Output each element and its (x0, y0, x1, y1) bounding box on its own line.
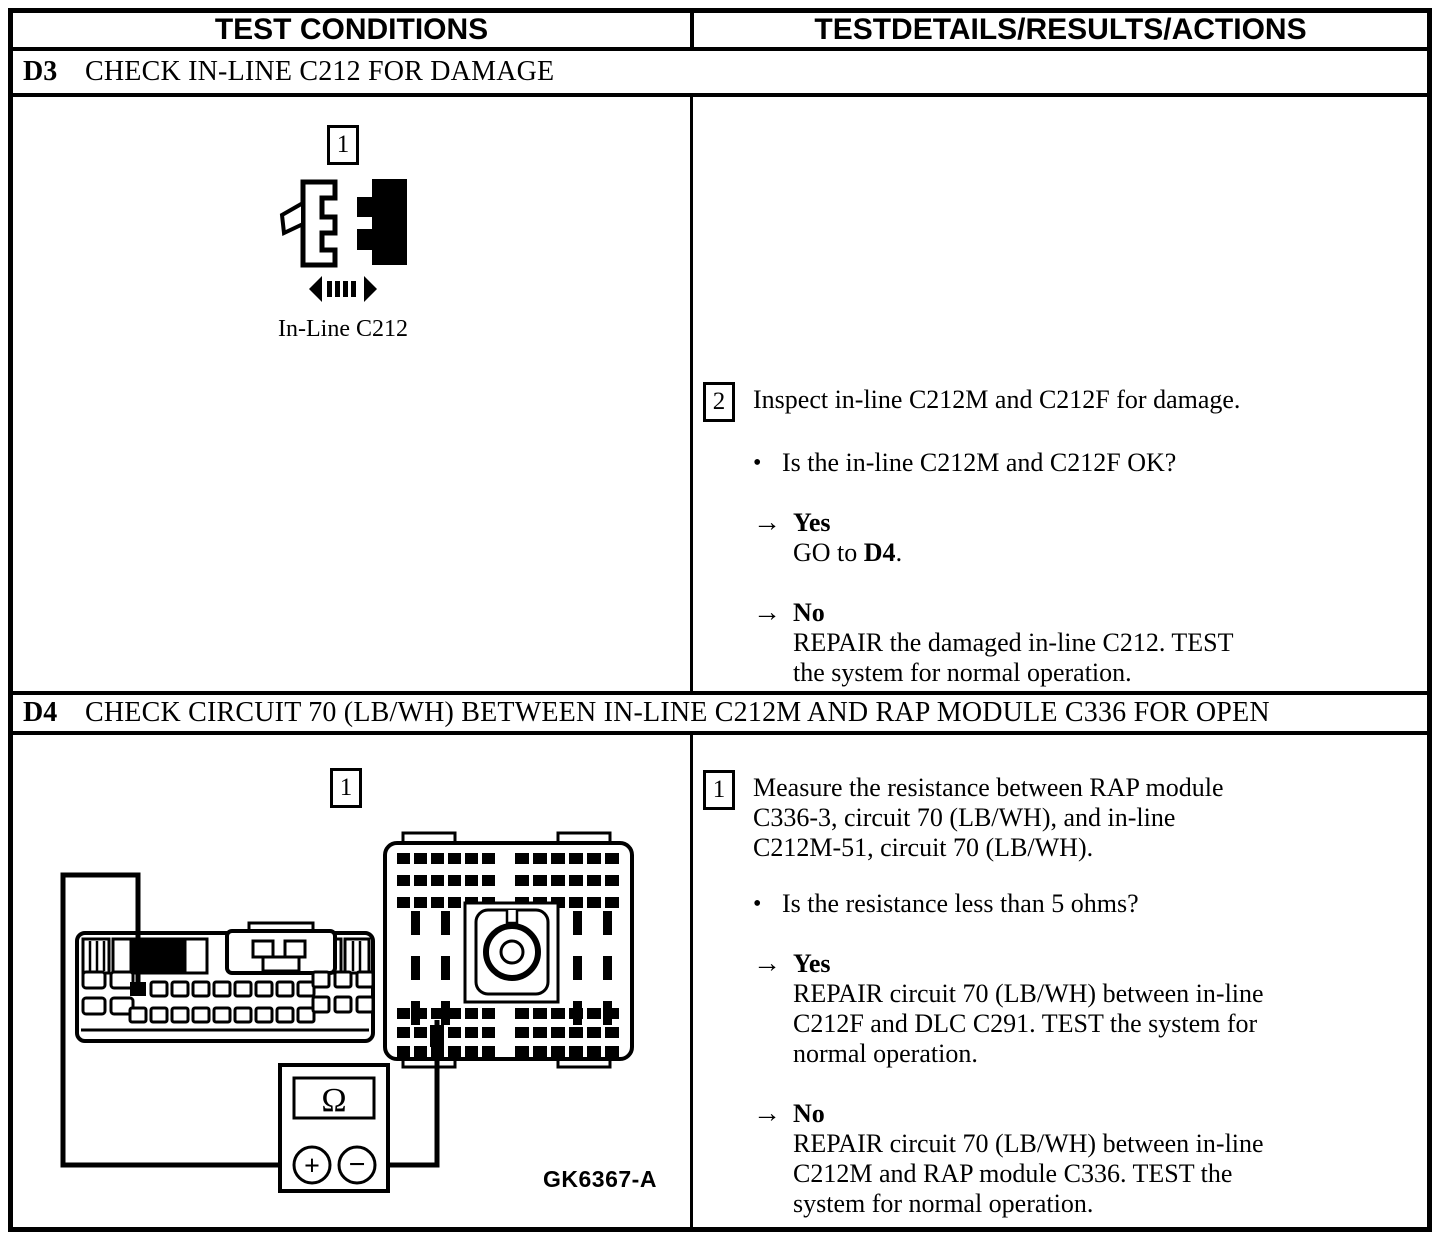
step-number-box: 2 (703, 382, 735, 422)
inline-connector-halves-diagram (278, 179, 408, 268)
result-arrow-icon: → (753, 949, 793, 979)
step-number: 1 (713, 775, 726, 805)
bullet-icon: • (753, 889, 782, 919)
arrow-dash (335, 281, 340, 297)
bullet-icon: • (753, 448, 782, 478)
question-text: Is the resistance less than 5 ohms? (782, 889, 1139, 919)
connector-male-half (303, 182, 335, 265)
step-number-box: 1 (703, 770, 735, 810)
header-test-details: TESTDETAILS/RESULTS/ACTIONS (694, 13, 1427, 47)
multimeter-diagram: Ω + − (280, 1065, 388, 1191)
pinpoint-test-table: TEST CONDITIONS TESTDETAILS/RESULTS/ACTI… (8, 8, 1432, 1232)
connector-female-half (372, 179, 407, 265)
result-arrow-icon: → (753, 598, 793, 628)
section-d4-title: CHECK CIRCUIT 70 (LB/WH) BETWEEN IN-LINE… (85, 697, 1270, 729)
action-text: . (896, 538, 903, 567)
section-d3-id: D3 (13, 56, 85, 88)
result-action: REPAIR circuit 70 (LB/WH) between in-lin… (793, 1129, 1264, 1219)
service-manual-page: TEST CONDITIONS TESTDETAILS/RESULTS/ACTI… (0, 0, 1440, 1240)
callout-box-1: 1 (327, 125, 359, 165)
action-target: D4 (864, 538, 896, 567)
result-answer: Yes (793, 508, 902, 538)
d3-results-cell: 2 Inspect in-line C212M and C212F for da… (693, 97, 1427, 691)
connector-female-tab-top (357, 197, 373, 217)
module-center-boss (465, 903, 558, 1002)
d4-results-cell: 1 Measure the resistance between RAP mod… (693, 735, 1427, 1227)
figure-code: GK6367-A (543, 1166, 657, 1192)
arrow-dash (327, 281, 332, 297)
arrow-left-head (309, 276, 322, 302)
probe-tip (430, 1025, 444, 1047)
section-d4-id: D4 (13, 697, 85, 729)
plus-symbol: + (304, 1151, 320, 1182)
d3-result-no: → No REPAIR the damaged in-line C212. TE… (753, 598, 1427, 688)
rap-module-connector-diagram (385, 833, 632, 1067)
step-instruction: Inspect in-line C212M and C212F for dama… (753, 385, 1240, 415)
section-d3-title-row: D3 CHECK IN-LINE C212 FOR DAMAGE (13, 51, 1427, 97)
arrow-dash (343, 281, 348, 297)
result-action: GO to D4. (793, 538, 902, 568)
header-test-conditions: TEST CONDITIONS (13, 13, 694, 47)
action-text: GO to (793, 538, 864, 567)
probed-pin (130, 982, 146, 996)
header-right-label: TESTDETAILS/RESULTS/ACTIONS (814, 13, 1306, 47)
d4-test-conditions-cell: 1 (13, 735, 693, 1227)
d3-test-conditions-cell: 1 (13, 97, 693, 691)
result-action: REPAIR circuit 70 (LB/WH) between in-lin… (793, 979, 1264, 1069)
section-d4-body-row: 1 (13, 735, 1427, 1227)
d3-question: • Is the in-line C212M and C212F OK? (753, 448, 1427, 478)
result-arrow-icon: → (753, 508, 793, 538)
inline-c212-figure: 1 (278, 125, 408, 343)
arrow-right-head (364, 276, 377, 302)
d4-question: • Is the resistance less than 5 ohms? (753, 889, 1427, 919)
d4-result-yes: → Yes REPAIR circuit 70 (LB/WH) between … (753, 949, 1427, 1069)
result-answer: No (793, 598, 1234, 628)
arrow-dash (351, 281, 356, 297)
connector-female-tab-bottom (357, 229, 373, 250)
step-number: 2 (713, 387, 726, 417)
header-left-label: TEST CONDITIONS (215, 13, 488, 47)
d4-result-no: → No REPAIR circuit 70 (LB/WH) between i… (753, 1099, 1427, 1219)
section-d3-title: CHECK IN-LINE C212 FOR DAMAGE (85, 56, 554, 88)
result-answer: No (793, 1099, 1264, 1129)
connector-latch-tab (282, 203, 303, 233)
d4-step: 1 Measure the resistance between RAP mod… (703, 773, 1427, 863)
section-d3-body-row: 1 (13, 97, 1427, 695)
mating-direction-arrow-icon (309, 276, 377, 302)
result-answer: Yes (793, 949, 1264, 979)
figure-caption: In-Line C212 (278, 316, 408, 343)
connector-latch (227, 923, 335, 973)
question-text: Is the in-line C212M and C212F OK? (782, 448, 1176, 478)
d3-step: 2 Inspect in-line C212M and C212F for da… (703, 385, 1427, 422)
minus-symbol: − (348, 1148, 365, 1181)
d3-result-yes: → Yes GO to D4. (753, 508, 1427, 568)
result-arrow-icon: → (753, 1099, 793, 1129)
table-header-row: TEST CONDITIONS TESTDETAILS/RESULTS/ACTI… (13, 13, 1427, 51)
c212m-connector-diagram (77, 923, 373, 1041)
ohm-symbol: Ω (321, 1082, 346, 1119)
result-action: REPAIR the damaged in-line C212. TEST th… (793, 628, 1234, 688)
resistance-test-diagram: Ω + − GK6367-A (13, 735, 690, 1227)
step-instruction: Measure the resistance between RAP modul… (753, 773, 1224, 863)
callout-number: 1 (337, 131, 350, 159)
section-d4-title-row: D4 CHECK CIRCUIT 70 (LB/WH) BETWEEN IN-L… (13, 695, 1427, 735)
